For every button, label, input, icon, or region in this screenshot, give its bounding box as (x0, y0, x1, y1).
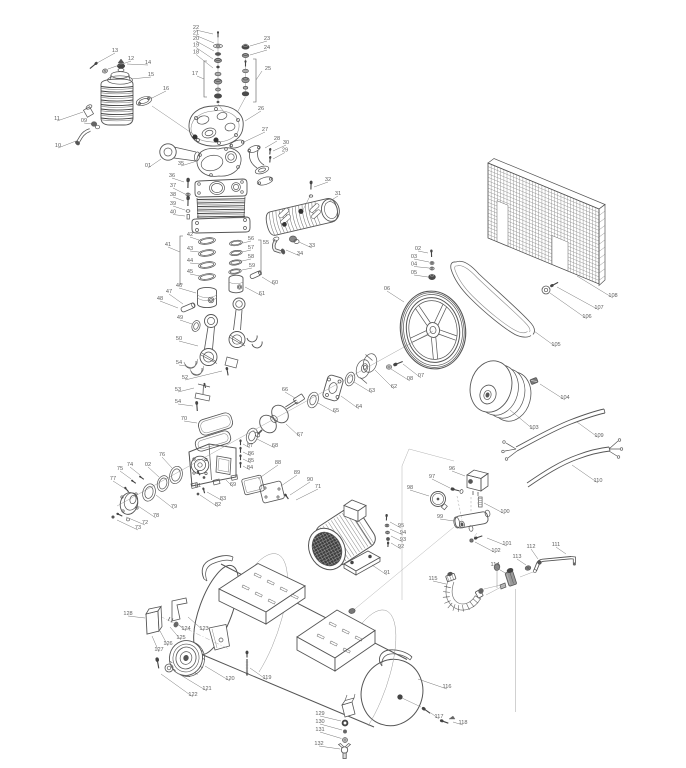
svg-text:27: 27 (262, 127, 268, 133)
svg-text:16: 16 (163, 86, 169, 92)
svg-text:125: 125 (176, 635, 185, 641)
svg-text:72: 72 (142, 520, 148, 526)
svg-text:103: 103 (529, 425, 538, 431)
svg-text:84: 84 (247, 465, 253, 471)
svg-text:110: 110 (594, 478, 603, 484)
svg-text:43: 43 (187, 246, 193, 252)
svg-text:97: 97 (429, 474, 435, 480)
svg-text:02: 02 (145, 462, 151, 468)
svg-text:113: 113 (513, 554, 522, 560)
svg-text:63: 63 (369, 388, 375, 394)
svg-text:70: 70 (181, 416, 187, 422)
svg-text:114: 114 (491, 562, 500, 568)
svg-text:18: 18 (193, 50, 199, 56)
svg-text:111: 111 (552, 542, 561, 548)
svg-text:106: 106 (582, 314, 591, 320)
svg-text:127: 127 (154, 647, 163, 653)
svg-text:65: 65 (333, 408, 339, 414)
svg-text:81: 81 (195, 483, 201, 489)
svg-text:102: 102 (491, 548, 500, 554)
svg-text:52: 52 (182, 375, 188, 381)
svg-text:13: 13 (112, 48, 118, 54)
svg-text:77: 77 (110, 476, 116, 482)
svg-text:85: 85 (248, 458, 254, 464)
svg-text:32: 32 (325, 177, 331, 183)
svg-text:06: 06 (384, 286, 390, 292)
svg-text:56: 56 (248, 236, 254, 242)
svg-text:64: 64 (356, 404, 362, 410)
svg-text:131: 131 (315, 727, 324, 733)
svg-text:45: 45 (187, 269, 193, 275)
svg-text:122: 122 (188, 692, 197, 698)
svg-text:68: 68 (272, 443, 278, 449)
svg-text:48: 48 (157, 296, 163, 302)
svg-text:100: 100 (500, 509, 509, 515)
svg-text:36: 36 (169, 173, 175, 179)
svg-text:90: 90 (307, 477, 313, 483)
svg-text:24: 24 (264, 45, 270, 51)
svg-text:10: 10 (55, 143, 61, 149)
svg-text:118: 118 (459, 720, 468, 726)
svg-text:78: 78 (153, 513, 159, 519)
svg-text:107: 107 (594, 305, 603, 311)
svg-text:129: 129 (315, 711, 324, 717)
svg-text:44: 44 (187, 258, 193, 264)
svg-text:86: 86 (248, 451, 254, 457)
svg-text:58: 58 (248, 254, 254, 260)
svg-text:120: 120 (225, 676, 234, 682)
svg-text:11: 11 (54, 116, 60, 122)
svg-text:76: 76 (159, 452, 165, 458)
svg-text:19: 19 (193, 43, 199, 49)
svg-text:123: 123 (199, 626, 208, 632)
svg-text:03: 03 (411, 254, 417, 260)
svg-text:04: 04 (411, 262, 417, 268)
svg-text:71: 71 (315, 484, 321, 490)
svg-text:37: 37 (170, 183, 176, 189)
svg-text:75: 75 (117, 466, 123, 472)
svg-text:112: 112 (527, 544, 536, 550)
svg-text:49: 49 (177, 315, 183, 321)
svg-text:31: 31 (335, 191, 341, 197)
svg-text:41: 41 (165, 242, 171, 248)
svg-text:128: 128 (123, 611, 132, 617)
svg-text:57: 57 (248, 245, 254, 251)
svg-text:132: 132 (314, 741, 323, 747)
svg-text:92: 92 (398, 544, 404, 550)
svg-text:96: 96 (449, 466, 455, 472)
svg-text:121: 121 (202, 686, 211, 692)
svg-text:33: 33 (309, 243, 315, 249)
svg-text:126: 126 (163, 641, 172, 647)
svg-text:38: 38 (170, 192, 176, 198)
svg-text:50: 50 (176, 336, 182, 342)
svg-text:02: 02 (415, 246, 421, 252)
svg-text:59: 59 (249, 263, 255, 269)
svg-text:54: 54 (176, 360, 182, 366)
svg-text:104: 104 (560, 395, 569, 401)
svg-text:14: 14 (145, 60, 151, 66)
svg-text:20: 20 (193, 36, 199, 42)
svg-text:46: 46 (176, 283, 182, 289)
svg-text:67: 67 (297, 432, 303, 438)
svg-text:82: 82 (215, 502, 221, 508)
svg-text:07: 07 (418, 373, 424, 379)
svg-text:23: 23 (264, 36, 270, 42)
svg-text:09: 09 (81, 118, 87, 124)
svg-text:29: 29 (282, 148, 288, 154)
svg-text:116: 116 (443, 684, 452, 690)
svg-text:39: 39 (170, 201, 176, 207)
svg-text:89: 89 (294, 470, 300, 476)
svg-text:79: 79 (171, 504, 177, 510)
svg-text:66: 66 (282, 387, 288, 393)
svg-text:26: 26 (258, 106, 264, 112)
svg-text:95: 95 (398, 523, 404, 529)
svg-text:25: 25 (265, 66, 271, 72)
svg-text:55: 55 (263, 240, 269, 246)
svg-text:15: 15 (148, 72, 154, 78)
svg-text:98: 98 (407, 485, 413, 491)
svg-text:74: 74 (127, 462, 133, 468)
svg-text:94: 94 (400, 530, 406, 536)
svg-text:47: 47 (166, 289, 172, 295)
svg-text:54: 54 (175, 399, 181, 405)
svg-text:53: 53 (175, 387, 181, 393)
svg-text:124: 124 (181, 626, 190, 632)
svg-text:119: 119 (263, 675, 272, 681)
svg-text:34: 34 (297, 251, 303, 257)
svg-text:42: 42 (187, 232, 193, 238)
svg-text:08: 08 (407, 376, 413, 382)
svg-text:28: 28 (274, 136, 280, 142)
svg-text:101: 101 (502, 541, 511, 547)
svg-text:117: 117 (435, 714, 444, 720)
svg-text:62: 62 (391, 384, 397, 390)
svg-text:105: 105 (551, 342, 560, 348)
svg-text:99: 99 (437, 514, 443, 520)
svg-text:35: 35 (178, 161, 184, 167)
svg-text:91: 91 (384, 570, 390, 576)
svg-text:93: 93 (400, 537, 406, 543)
svg-text:69: 69 (230, 482, 236, 488)
svg-text:17: 17 (192, 71, 198, 77)
svg-text:40: 40 (170, 210, 176, 216)
svg-text:05: 05 (411, 270, 417, 276)
svg-text:60: 60 (272, 280, 278, 286)
svg-text:30: 30 (283, 140, 289, 146)
svg-text:109: 109 (594, 433, 603, 439)
svg-text:12: 12 (128, 56, 134, 62)
svg-text:61: 61 (259, 291, 265, 297)
svg-text:73: 73 (135, 525, 141, 531)
svg-text:108: 108 (608, 293, 617, 299)
svg-text:88: 88 (275, 460, 281, 466)
svg-text:01: 01 (145, 163, 151, 169)
svg-text:115: 115 (429, 576, 438, 582)
svg-text:130: 130 (315, 719, 324, 725)
